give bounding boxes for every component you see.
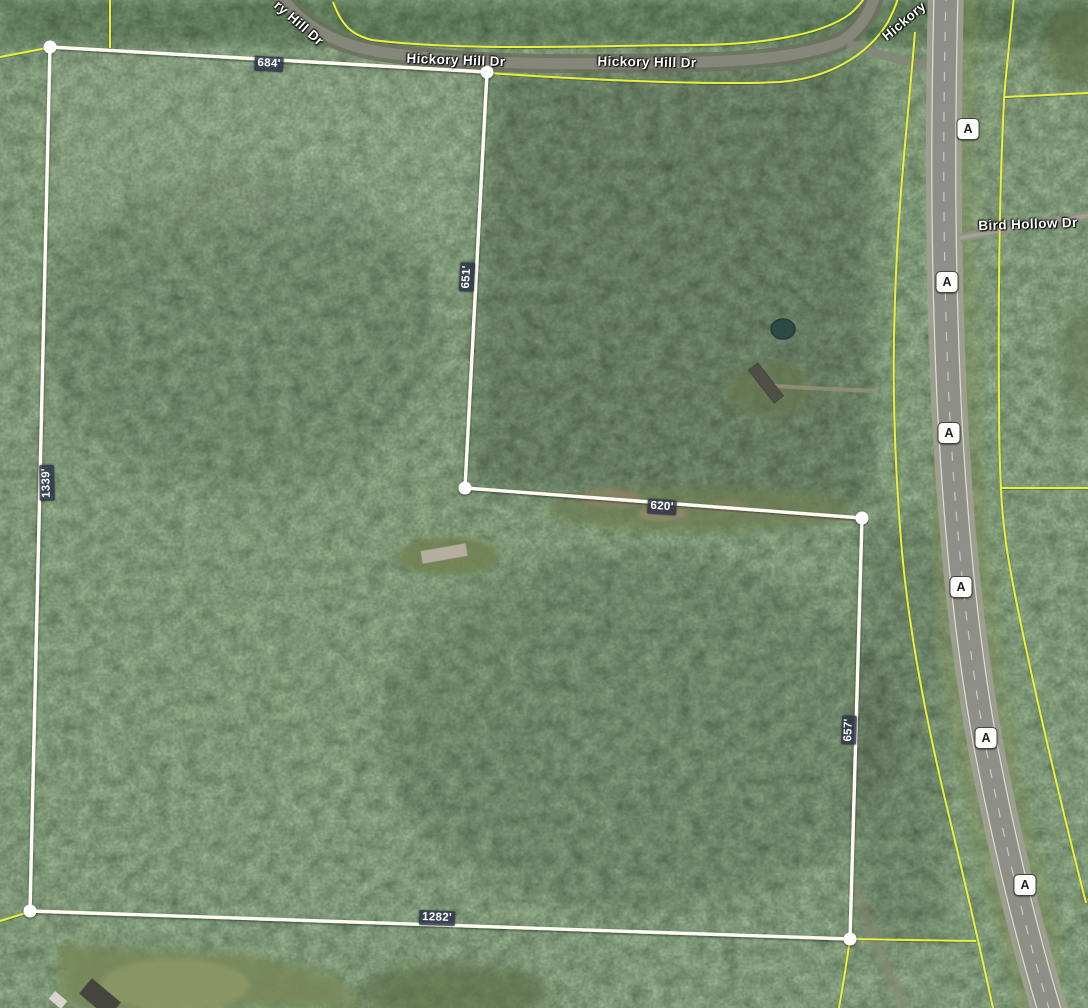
satellite-layer xyxy=(0,0,1088,1008)
road-label-hickory-2: Hickory Hill Dr xyxy=(597,54,696,71)
measurement-label-top[interactable]: 684' xyxy=(254,56,284,73)
map-canvas[interactable]: 684' 651' 620' 657' 1282' 1339' ry Hill … xyxy=(0,0,1088,1008)
vertex-interior[interactable] xyxy=(459,482,472,495)
measurement-label-right[interactable]: 657' xyxy=(841,715,857,745)
route-shield-a-3: A xyxy=(938,422,961,444)
route-shield-a-2: A xyxy=(936,271,959,293)
vertex-bottom-right[interactable] xyxy=(844,933,857,946)
measurement-label-middle[interactable]: 620' xyxy=(647,499,677,516)
vertex-bottom-left[interactable] xyxy=(24,905,37,918)
route-shield-a-1: A xyxy=(957,118,980,140)
route-shield-a-5: A xyxy=(975,727,998,749)
vertex-right[interactable] xyxy=(856,512,869,525)
vertex-top-left[interactable] xyxy=(44,41,57,54)
route-shield-a-6: A xyxy=(1014,874,1037,896)
pond xyxy=(771,319,795,339)
measurement-label-upper-right[interactable]: 651' xyxy=(459,262,476,292)
measurement-label-left[interactable]: 1339' xyxy=(39,465,55,501)
route-shield-a-4: A xyxy=(950,576,973,598)
measurement-label-bottom[interactable]: 1282' xyxy=(419,910,455,926)
